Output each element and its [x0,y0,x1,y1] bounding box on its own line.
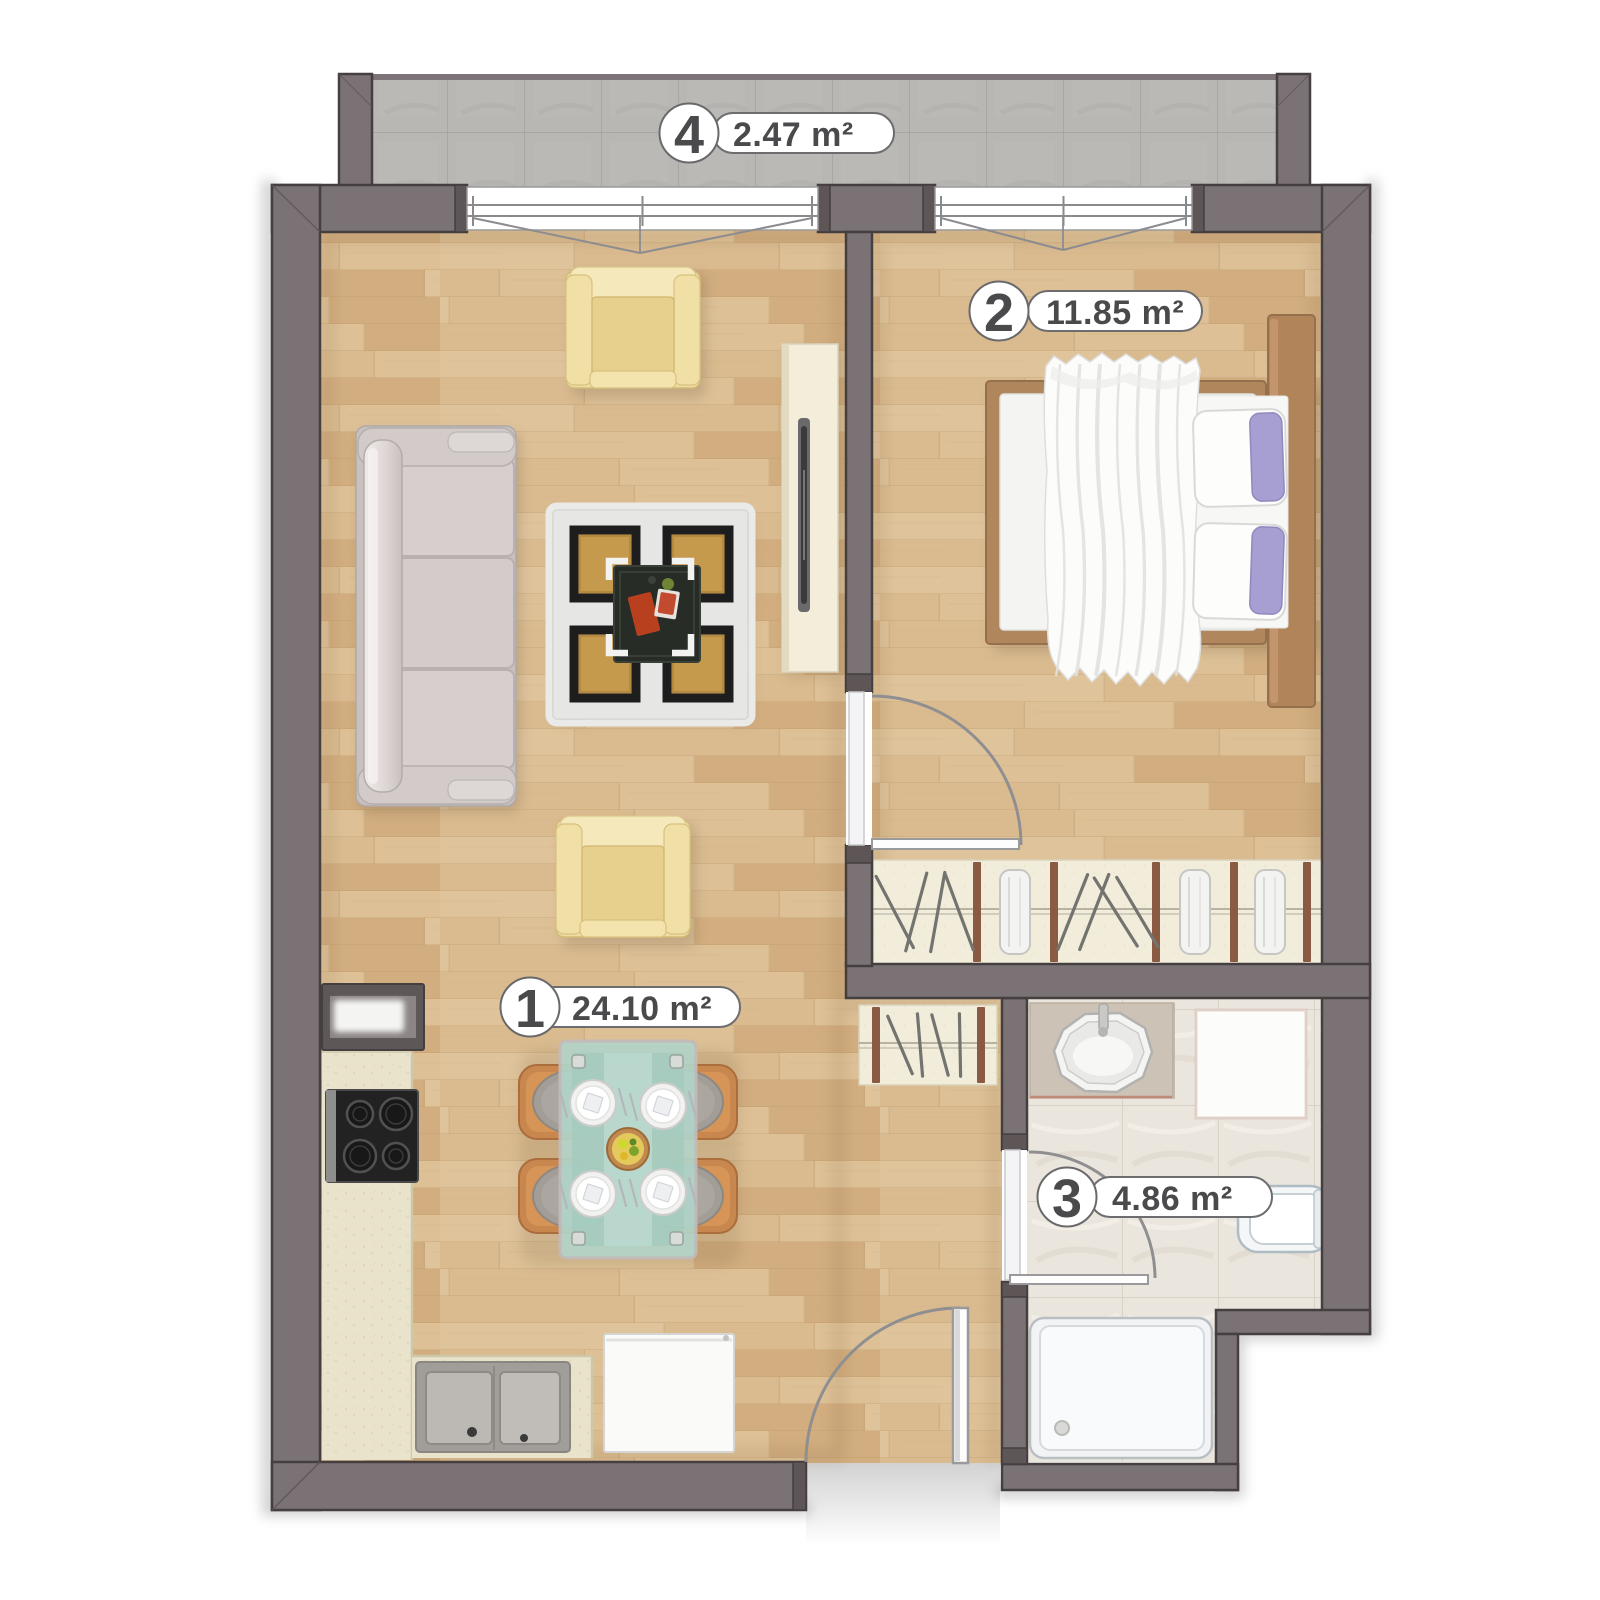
svg-text:3: 3 [1052,1169,1082,1229]
svg-text:2: 2 [984,283,1014,343]
svg-text:2.47 m²: 2.47 m² [733,116,854,154]
svg-text:11.85 m²: 11.85 m² [1046,294,1184,332]
svg-text:4: 4 [674,105,704,165]
svg-text:24.10 m²: 24.10 m² [572,990,712,1028]
svg-text:4.86 m²: 4.86 m² [1112,1180,1233,1218]
svg-text:1: 1 [515,979,545,1039]
